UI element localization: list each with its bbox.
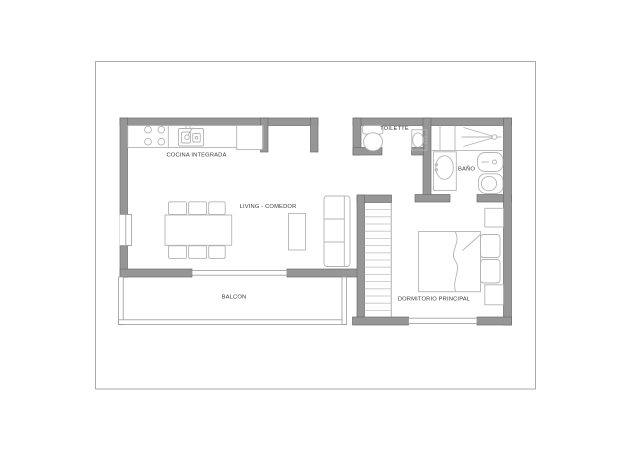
floor-plan-drawing: COCINA INTEGRADA LIVING - COMEDOR TOILET… (0, 0, 637, 450)
bathroom-fixtures (431, 126, 504, 194)
bathroom-toilet-icon (479, 174, 504, 194)
nightstand-icon (485, 285, 504, 305)
stair-treads (365, 210, 392, 311)
dining-chair-icon (189, 246, 207, 259)
dining-chair-icon (209, 246, 226, 259)
balcony-railing-bottom (119, 320, 347, 325)
wall-segment (287, 269, 360, 277)
coffee-table-icon (289, 214, 306, 251)
shower-icon (431, 126, 504, 151)
nightstand-icon (485, 208, 504, 227)
dining-chairs-bottom (169, 246, 226, 259)
refrigerator-icon (237, 126, 263, 150)
floor-plan-page: COCINA INTEGRADA LIVING - COMEDOR TOILET… (0, 0, 637, 450)
bedroom-window-icon (409, 318, 478, 323)
wall-segment (311, 118, 319, 152)
dining-set (165, 202, 232, 259)
wall-segment (353, 317, 409, 325)
bedroom-fixtures (419, 208, 504, 304)
vanity-sink-icon (434, 152, 457, 191)
wall-segment (120, 269, 192, 277)
dining-chair-icon (169, 246, 187, 259)
room-label-bedroom: DORMITORIO PRINCIPAL (398, 297, 471, 303)
bidet-icon (478, 153, 504, 172)
wall-segment (120, 118, 318, 126)
balcony-railing-left (119, 277, 124, 325)
wall-segment (357, 195, 365, 317)
dining-chair-icon (169, 202, 187, 215)
room-label-kitchen: COCINA INTEGRADA (166, 153, 226, 159)
wall-segment (353, 118, 512, 126)
wall-segment (477, 317, 512, 325)
staircase-icon (365, 203, 392, 318)
kitchen-fixtures (128, 126, 263, 150)
room-label-toilette: TOILETTE (380, 126, 409, 132)
sofa-icon (324, 196, 350, 267)
room-label-balcony: BALCON (222, 295, 247, 301)
dining-chair-icon (189, 202, 207, 215)
living-fixtures (289, 196, 351, 267)
dining-chair-icon (209, 202, 226, 215)
window-icon (120, 215, 132, 246)
wall-segment (120, 118, 128, 277)
wall-segment (504, 118, 512, 325)
window-frame (126, 215, 132, 246)
page-border (96, 62, 536, 390)
wall-segment (412, 148, 424, 156)
dining-chairs-top (169, 202, 226, 215)
room-label-living: LIVING - COMEDOR (240, 204, 297, 210)
double-bed-icon (419, 232, 501, 292)
dining-table-icon (165, 215, 232, 245)
wall-segment (415, 195, 450, 203)
pillow-icon (481, 235, 501, 258)
pillow-icon (481, 260, 501, 284)
sliding-door-icon (192, 271, 287, 276)
balcony-railing-right (342, 277, 347, 324)
room-label-bathroom: BAÑO (458, 166, 475, 173)
